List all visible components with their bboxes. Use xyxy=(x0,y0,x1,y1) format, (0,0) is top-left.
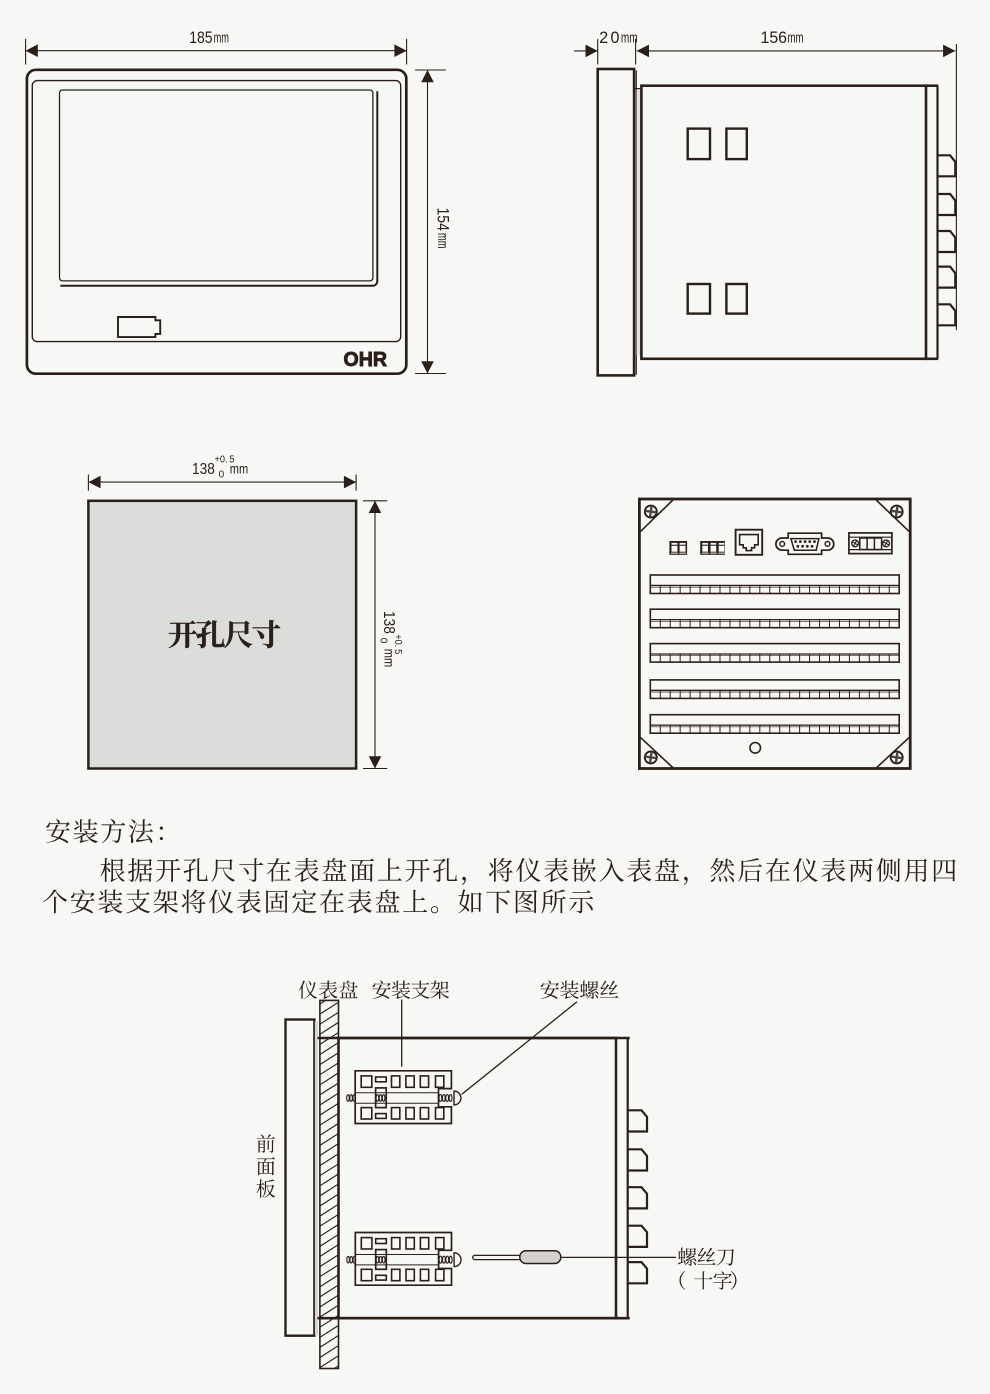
svg-text:0: 0 xyxy=(219,470,225,481)
svg-text:OHR: OHR xyxy=(344,349,388,371)
svg-text:mm: mm xyxy=(214,30,229,47)
svg-text:138: 138 xyxy=(192,461,215,478)
svg-text:0: 0 xyxy=(377,638,388,644)
svg-text:2: 2 xyxy=(599,28,608,47)
svg-text:mm: mm xyxy=(434,233,451,248)
svg-text:mm: mm xyxy=(788,30,804,47)
svg-text:154: 154 xyxy=(434,208,453,231)
svg-text:185: 185 xyxy=(189,28,212,47)
svg-text:138: 138 xyxy=(380,611,397,634)
svg-text:mm: mm xyxy=(621,30,638,47)
svg-text:+0. 5: +0. 5 xyxy=(215,455,235,466)
svg-text:156: 156 xyxy=(761,28,788,47)
svg-text:0: 0 xyxy=(611,28,620,47)
svg-text:+0. 5: +0. 5 xyxy=(392,634,403,654)
